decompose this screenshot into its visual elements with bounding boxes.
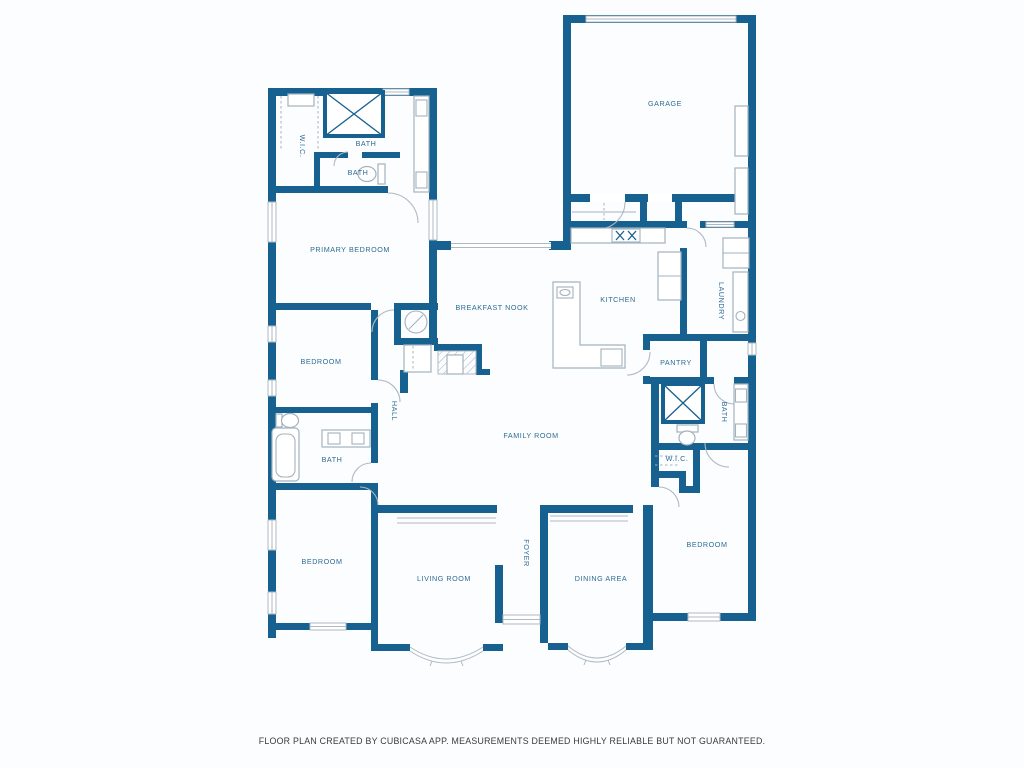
kitchen-counter-icon (571, 228, 665, 243)
room-label-primary-bedroom: PRIMARY BEDROOM (310, 245, 390, 254)
closet-shelving-icon (572, 203, 636, 220)
fixtures-layer (272, 92, 749, 481)
room-label-bedroom-bottom-right: BEDROOM (687, 540, 728, 549)
room-label-foyer: FOYER (522, 539, 531, 567)
floor-plan-drawing: GARAGE W.I.C. BATH BATH PRIMARY BEDROOM … (0, 0, 1024, 768)
room-label-kitchen: KITCHEN (600, 295, 635, 304)
bay-window-dining (568, 646, 626, 665)
room-label-hall: HALL (390, 401, 399, 421)
room-label-bedroom-left: BEDROOM (301, 357, 342, 366)
shower-icon (325, 92, 383, 136)
sink-icon (414, 96, 429, 192)
room-label-pantry: PANTRY (660, 358, 692, 367)
shower-icon (663, 384, 703, 422)
room-label-bath-top: BATH (356, 139, 377, 148)
room-label-living-room: LIVING ROOM (417, 574, 471, 583)
room-label-bath-top-small: BATH (348, 168, 369, 177)
fridge-icon (658, 252, 681, 300)
room-label-wic-top: W.I.C. (298, 135, 307, 158)
bay-window-living (410, 647, 483, 666)
entry-door (503, 615, 540, 624)
room-label-bath-right: BATH (720, 402, 729, 423)
floor-plan-page: { "colors": { "wall": "#16618f", "label"… (0, 0, 1024, 768)
garage-shelf-icon (735, 106, 748, 156)
room-label-wic-right: W.I.C. (666, 454, 689, 463)
cabinet-icon (404, 345, 431, 372)
room-label-bedroom-bottom-left: BEDROOM (302, 557, 343, 566)
room-label-laundry: LAUNDRY (717, 282, 726, 320)
room-label-garage: GARAGE (648, 99, 682, 108)
room-label-dining-area: DINING AREA (575, 574, 627, 583)
room-label-breakfast-nook: BREAKFAST NOOK (455, 303, 528, 312)
sink-icon (734, 384, 748, 440)
water-heater-icon (405, 311, 427, 333)
room-label-family-room: FAMILY ROOM (503, 431, 558, 440)
toilet-icon (677, 425, 698, 445)
room-label-bath-left: BATH (322, 455, 343, 464)
toilet-icon (276, 414, 299, 428)
fireplace-icon (438, 351, 476, 374)
bathtub-icon (272, 428, 299, 481)
garage-shelf-icon (735, 168, 748, 214)
sink-icon (322, 430, 370, 447)
disclaimer-text: FLOOR PLAN CREATED BY CUBICASA APP. MEAS… (0, 736, 1024, 746)
